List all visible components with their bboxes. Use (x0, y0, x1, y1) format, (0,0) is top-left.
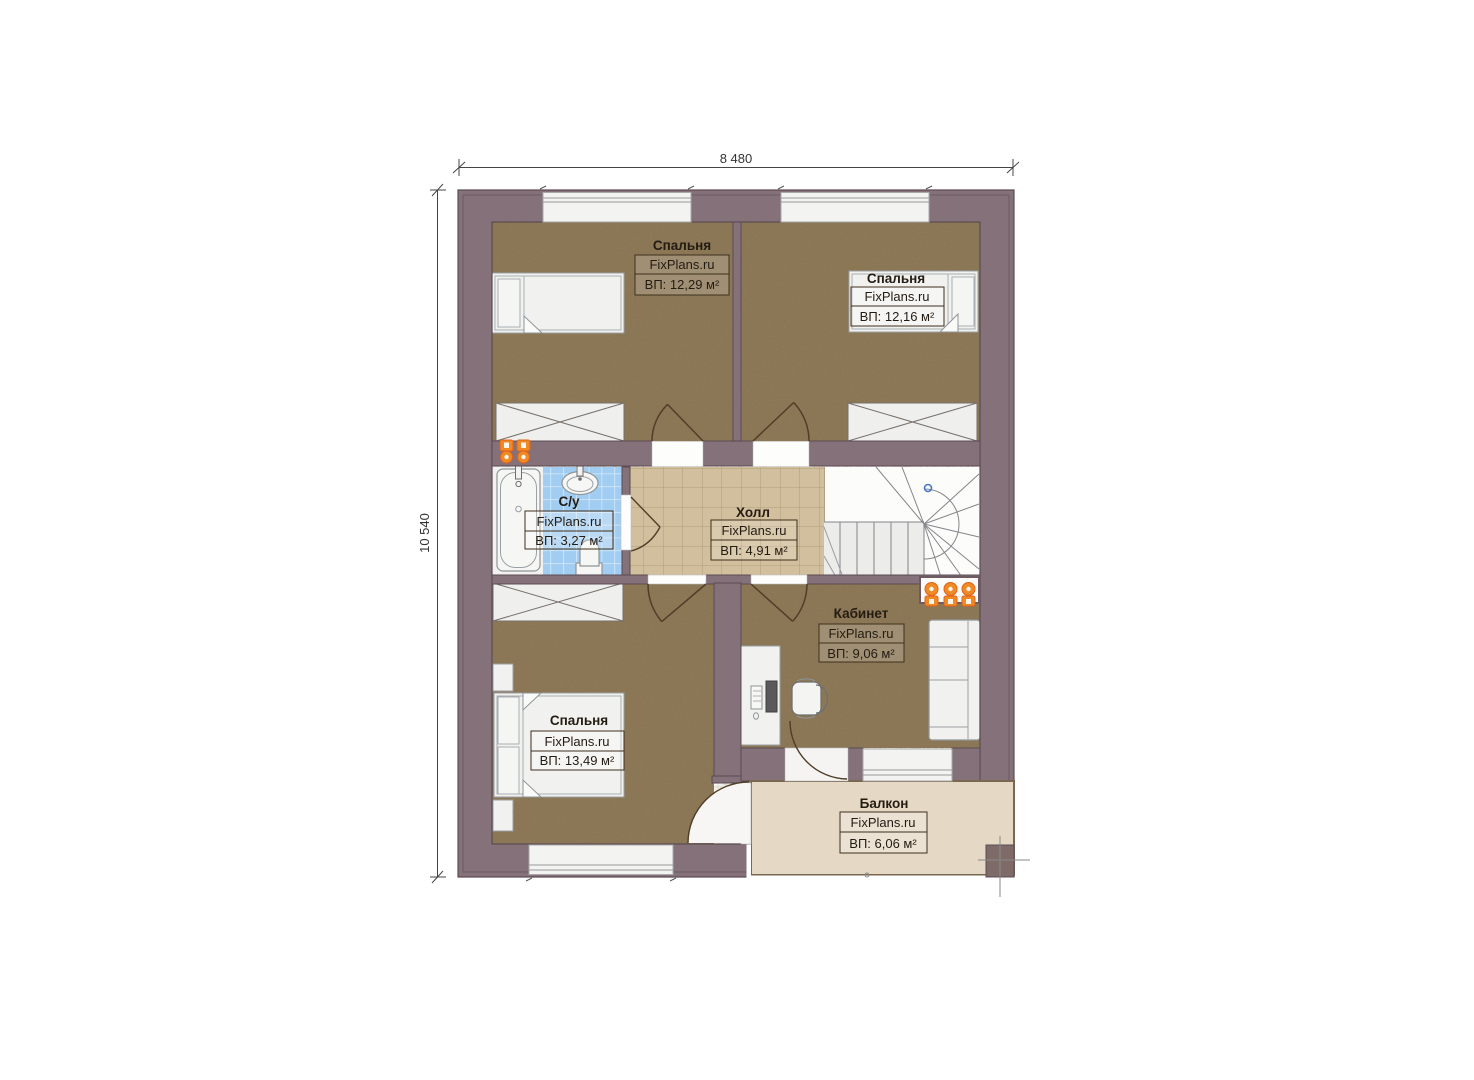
svg-text:ВП: 4,91 м²: ВП: 4,91 м² (720, 543, 788, 558)
svg-text:FixPlans.ru: FixPlans.ru (544, 734, 609, 749)
svg-text:FixPlans.ru: FixPlans.ru (649, 257, 714, 272)
svg-text:Балкон: Балкон (860, 796, 909, 811)
svg-text:FixPlans.ru: FixPlans.ru (864, 289, 929, 304)
svg-text:FixPlans.ru: FixPlans.ru (721, 523, 786, 538)
svg-text:FixPlans.ru: FixPlans.ru (536, 514, 601, 529)
svg-text:Спальня: Спальня (653, 238, 711, 253)
svg-text:ВП: 12,16 м²: ВП: 12,16 м² (860, 309, 935, 324)
svg-text:ВП: 12,29 м²: ВП: 12,29 м² (645, 277, 720, 292)
svg-text:ВП: 6,06 м²: ВП: 6,06 м² (849, 836, 917, 851)
svg-text:FixPlans.ru: FixPlans.ru (850, 815, 915, 830)
svg-text:10 540: 10 540 (417, 513, 432, 553)
svg-text:8 480: 8 480 (720, 151, 753, 166)
svg-text:FixPlans.ru: FixPlans.ru (828, 626, 893, 641)
svg-text:Кабинет: Кабинет (834, 606, 889, 621)
svg-text:С/у: С/у (558, 494, 580, 509)
svg-text:ВП: 3,27 м²: ВП: 3,27 м² (535, 533, 603, 548)
svg-text:ВП: 9,06 м²: ВП: 9,06 м² (827, 646, 895, 661)
svg-text:Спальня: Спальня (550, 713, 608, 728)
svg-text:ВП: 13,49 м²: ВП: 13,49 м² (540, 753, 615, 768)
svg-text:Холл: Холл (736, 505, 770, 520)
svg-text:Спальня: Спальня (867, 271, 925, 286)
